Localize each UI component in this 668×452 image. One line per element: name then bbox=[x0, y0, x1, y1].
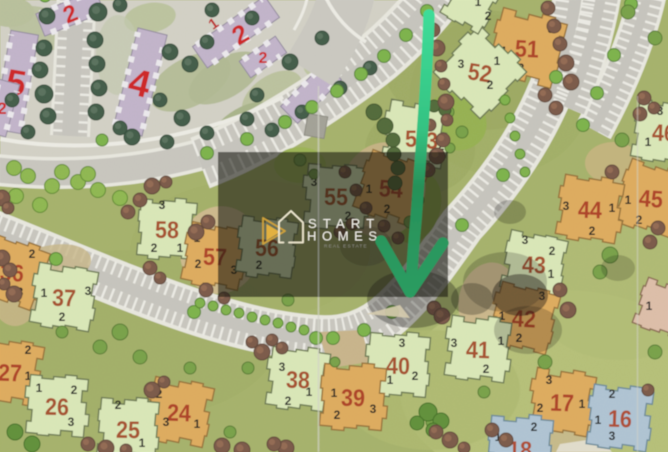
svg-text:HOMES: HOMES bbox=[307, 229, 383, 244]
svg-text:REAL ESTATE: REAL ESTATE bbox=[324, 244, 368, 250]
